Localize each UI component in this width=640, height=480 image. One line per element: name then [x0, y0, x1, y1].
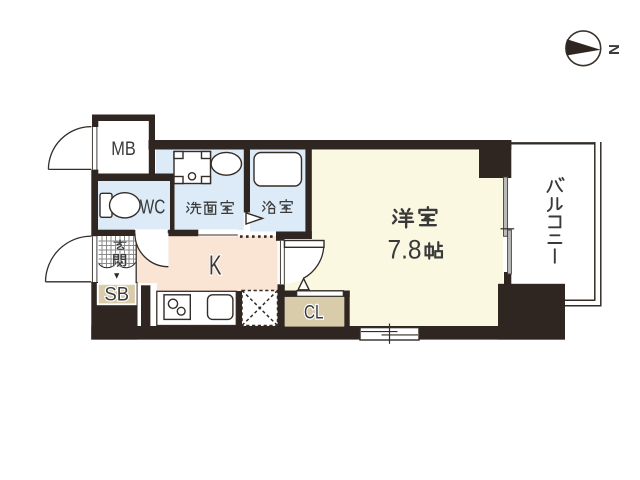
svg-text:WC: WC — [140, 196, 166, 219]
svg-text:K: K — [209, 250, 222, 281]
svg-text:CL: CL — [304, 302, 324, 324]
svg-text:7.8: 7.8 — [388, 235, 422, 265]
svg-text:N: N — [605, 44, 622, 55]
svg-text:MB: MB — [111, 139, 136, 160]
svg-text:SB: SB — [105, 284, 130, 306]
